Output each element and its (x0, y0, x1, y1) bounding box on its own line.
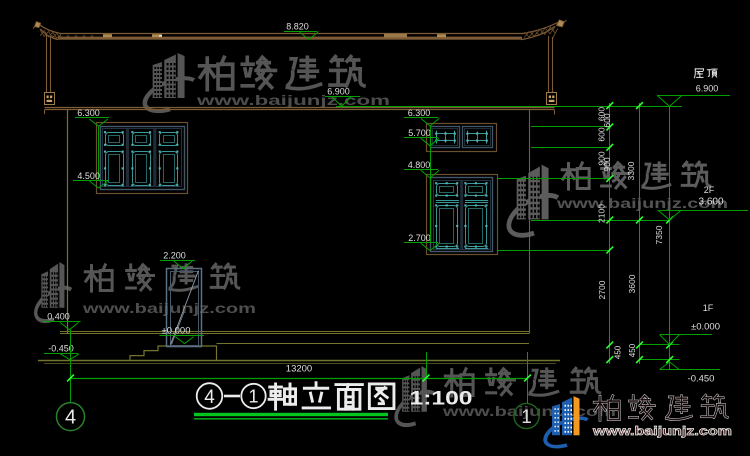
svg-text:6.300: 6.300 (77, 108, 100, 118)
svg-text:3.600: 3.600 (698, 197, 723, 208)
svg-text:1: 1 (248, 387, 258, 407)
svg-text:7350: 7350 (654, 225, 664, 244)
svg-text:-0.450: -0.450 (48, 344, 74, 354)
svg-text:±0.000: ±0.000 (162, 326, 191, 337)
svg-text:-0.450: -0.450 (688, 374, 715, 385)
svg-text:1F: 1F (703, 303, 714, 313)
svg-text:8.820: 8.820 (286, 22, 309, 32)
svg-text:2.700: 2.700 (408, 233, 431, 243)
svg-text:www.baijunjz.com: www.baijunjz.com (592, 424, 732, 438)
svg-text:3600: 3600 (627, 274, 637, 293)
svg-text:3300: 3300 (626, 161, 636, 180)
svg-text:4.500: 4.500 (77, 171, 100, 181)
svg-text:±0.000: ±0.000 (691, 322, 720, 333)
svg-text:6.300: 6.300 (408, 108, 431, 118)
svg-text:2F: 2F (704, 185, 715, 195)
svg-text:0.400: 0.400 (47, 312, 70, 322)
svg-text:4: 4 (204, 387, 215, 408)
svg-text:600: 600 (596, 127, 606, 141)
svg-text:450: 450 (628, 343, 637, 357)
svg-text:1:100: 1:100 (410, 388, 473, 410)
svg-text:1: 1 (521, 407, 532, 428)
svg-text:6.900: 6.900 (327, 87, 350, 97)
svg-text:4.800: 4.800 (408, 160, 431, 170)
svg-text:6.900: 6.900 (696, 84, 719, 94)
svg-text:www.baijunjz.com: www.baijunjz.com (82, 300, 256, 316)
svg-text:4: 4 (65, 407, 76, 429)
svg-text:2100: 2100 (596, 204, 606, 223)
svg-text:600: 600 (602, 113, 612, 127)
svg-text:900: 900 (602, 157, 612, 171)
svg-text:450: 450 (614, 345, 623, 359)
svg-text:www.baijunjz.com: www.baijunjz.com (195, 93, 390, 108)
svg-text:2.200: 2.200 (163, 251, 186, 261)
svg-text:13200: 13200 (286, 364, 312, 375)
svg-text:2700: 2700 (597, 280, 607, 299)
svg-text:5.700: 5.700 (408, 128, 431, 138)
